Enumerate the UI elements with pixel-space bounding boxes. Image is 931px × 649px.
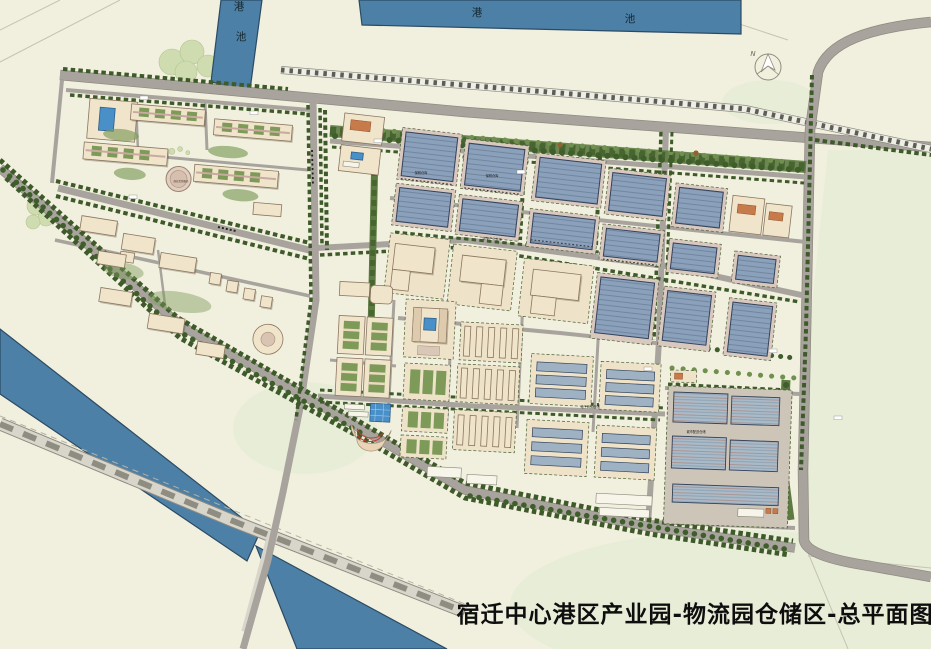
admin-wing — [412, 307, 422, 341]
city-distribution-block — [663, 370, 792, 528]
warehouse-label-a: 保税仓库 — [415, 170, 429, 175]
vertical-basin-label-top: 港 — [234, 1, 245, 13]
mini-building — [674, 373, 682, 379]
warehouse-roof — [401, 132, 458, 182]
row-house — [493, 417, 501, 447]
office-tower — [243, 288, 256, 301]
warehouse-roof — [676, 187, 724, 228]
bus-canopy — [370, 403, 391, 422]
sign-chip — [644, 367, 652, 371]
admin-wing — [438, 309, 448, 343]
row-house — [508, 370, 516, 400]
factory-building — [392, 243, 435, 273]
master-plan-drawing: 港 池 港 池 — [0, 0, 931, 649]
row-house — [463, 326, 471, 356]
green-court — [419, 440, 430, 455]
warehouse-roof — [536, 157, 602, 204]
factory-wing — [479, 283, 503, 305]
warehouse-roof — [464, 143, 524, 191]
distribution-warehouse — [671, 436, 726, 470]
shed-plots-col2 — [452, 322, 523, 453]
horizontal-basin-label-left: 港 — [472, 7, 483, 19]
sign-chip — [834, 416, 842, 420]
green-court — [407, 411, 418, 428]
sign-chip — [140, 96, 148, 100]
row-house — [496, 370, 504, 400]
sign-chip — [374, 139, 382, 143]
green-court — [409, 369, 420, 393]
dorm-building — [339, 281, 370, 297]
fountain-plaza — [169, 148, 175, 154]
sign-chip — [129, 195, 137, 199]
row-house — [469, 415, 477, 445]
service-building — [737, 204, 756, 215]
autumn-tree — [558, 143, 563, 148]
office-tower — [209, 272, 222, 285]
gatehouse — [738, 508, 764, 517]
admin-atrium — [424, 318, 437, 331]
warehouse-label-b: 保税仓库 — [486, 173, 500, 178]
autumn-tree — [693, 150, 698, 155]
row-house — [472, 369, 480, 399]
sign-chip — [250, 111, 258, 115]
service-building — [769, 212, 784, 222]
dorm-court — [340, 363, 357, 392]
commercial-center-label: 商业文化服务 — [173, 179, 189, 183]
dorm-building-curved — [370, 285, 393, 304]
distribution-warehouse — [673, 392, 728, 424]
row-house — [460, 368, 468, 398]
road-label-ecommerce: 电子商务仓储 — [580, 404, 600, 409]
row-house — [511, 329, 519, 359]
factory-wing — [390, 269, 410, 291]
fountain-plaza — [177, 146, 182, 151]
swimming-pool — [98, 107, 115, 131]
distribution-warehouse-long — [672, 484, 779, 506]
row-house — [457, 415, 465, 445]
utility-box — [773, 509, 778, 514]
apartment-slab-small — [253, 202, 282, 216]
dorm-court — [370, 322, 387, 351]
sports-court — [350, 120, 371, 132]
warehouse-roof-large — [662, 291, 711, 346]
warehouse-roof-large — [727, 302, 772, 356]
bus — [344, 404, 364, 410]
office-tower — [260, 296, 273, 309]
vertical-basin-label-bottom: 池 — [236, 30, 247, 43]
warehouse-roof — [670, 243, 717, 274]
row-house — [499, 328, 507, 358]
green-court — [420, 412, 431, 429]
row-house — [505, 417, 513, 447]
warehouse-roof — [603, 228, 660, 262]
horizontal-basin-label-right: 池 — [625, 12, 636, 25]
sign-chip — [769, 349, 777, 353]
fountain-plaza — [186, 151, 190, 155]
row-house — [475, 327, 483, 357]
warehouse-roof-large — [595, 277, 655, 339]
plan-title: 宿迁中心港区产业园-物流园仓储区-总平面图 — [456, 601, 931, 628]
service-pool — [351, 152, 364, 160]
green-court — [422, 370, 433, 394]
small-shed — [467, 474, 497, 485]
warehouse-roof — [609, 173, 667, 217]
service-plot — [729, 195, 765, 234]
green-court — [435, 371, 446, 395]
distribution-warehouse — [729, 440, 778, 472]
block-label-city-distribution: 城市配送仓储 — [686, 429, 706, 434]
green-court — [432, 441, 443, 456]
compass-north-label: N — [750, 50, 756, 58]
distribution-warehouse — [731, 396, 780, 426]
row-house — [487, 327, 495, 357]
row-house — [484, 369, 492, 399]
warehouse-roof — [530, 213, 595, 250]
site-plan-canvas: 港 池 港 池 — [0, 0, 931, 649]
factory-building — [460, 255, 507, 286]
warehouse-roof — [736, 255, 776, 283]
bus — [348, 411, 368, 417]
small-shed — [427, 466, 461, 478]
office-tower — [226, 280, 239, 293]
row-house — [481, 416, 489, 446]
warehouse-roof — [396, 188, 452, 228]
admin-plaza — [417, 346, 439, 356]
dorm-court — [343, 321, 360, 350]
factory-wing — [530, 295, 556, 316]
warehouse-roof — [459, 199, 518, 237]
dorm-court — [368, 364, 385, 393]
green-court — [433, 413, 444, 430]
utility-box — [766, 508, 771, 513]
sign-chip — [517, 170, 525, 174]
green-court — [406, 439, 417, 454]
